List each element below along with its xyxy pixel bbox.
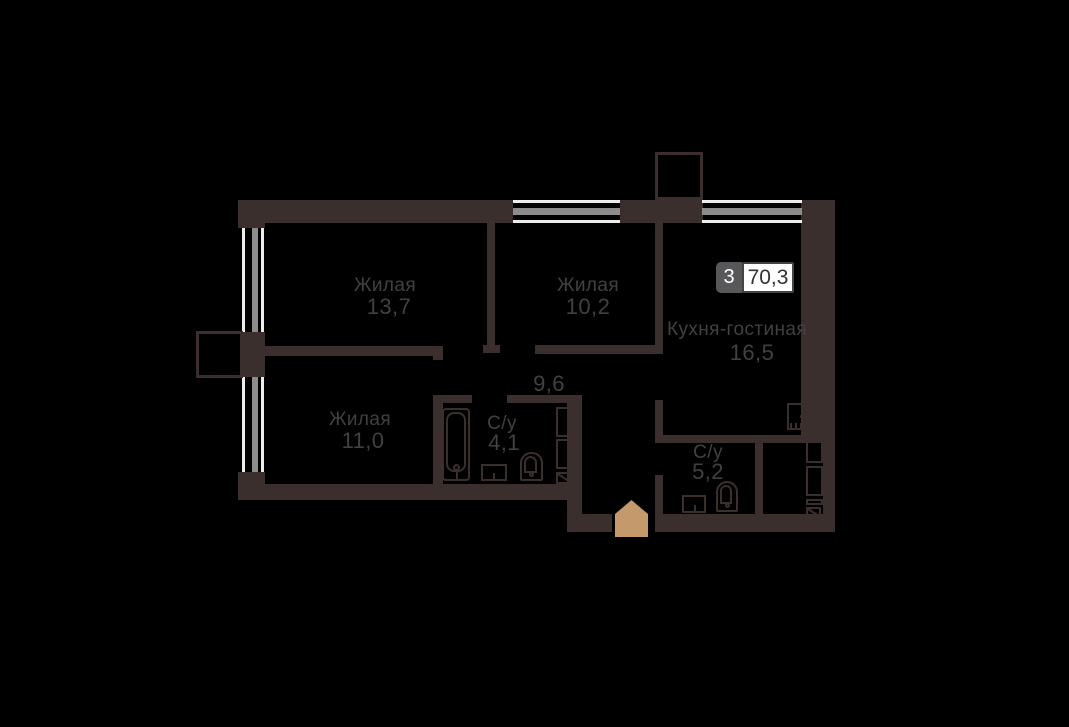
window <box>513 200 620 223</box>
wall-jamb <box>483 345 500 353</box>
room-label: Кухня-гостиная <box>667 319 807 341</box>
ventilation-shaft-left <box>196 331 243 378</box>
wall-bottom-left <box>238 484 582 500</box>
cabinet-shelf <box>806 466 823 496</box>
wall-bathroom2-top <box>655 435 805 443</box>
floor-plan: Жилая 13,7 Жилая 10,2 Кухня-гостиная 16,… <box>0 0 1069 727</box>
toilet <box>481 464 507 481</box>
window <box>238 377 265 472</box>
utility-box <box>806 507 821 518</box>
room-area: 5,2 <box>692 459 724 485</box>
wall-bottom-mid <box>567 514 612 532</box>
wall-left-corner-top <box>238 200 265 228</box>
ventilation-shaft-top <box>655 152 703 200</box>
sink <box>520 452 543 481</box>
window <box>702 200 802 223</box>
room-area: 4,1 <box>488 430 520 456</box>
wall-between-living13-living10 <box>487 223 495 345</box>
bathtub <box>442 408 470 481</box>
wall-top-mid <box>620 200 703 223</box>
cabinet-shelf <box>806 441 823 463</box>
wall-between-living13-living11 <box>265 346 442 356</box>
entrance-marker <box>615 500 648 537</box>
wall-bathroom2-right <box>755 443 763 517</box>
utility-box <box>556 472 572 484</box>
cabinet-shelf <box>556 407 572 437</box>
sink <box>716 481 738 512</box>
room-area: 10,2 <box>566 294 610 320</box>
wall-top-left <box>238 200 513 223</box>
cabinet-shelf <box>556 439 572 469</box>
room-area: 9,6 <box>533 371 565 397</box>
room-area: 13,7 <box>367 294 411 320</box>
room-count-badge: 3 <box>716 262 742 293</box>
toilet <box>682 495 706 513</box>
total-area-badge: 70,3 <box>742 262 794 293</box>
wall-jamb <box>433 346 443 360</box>
cabinet-shelf <box>806 499 823 505</box>
wall-bathroom2-left <box>655 475 663 517</box>
apartment-badge: 3 70,3 <box>716 262 794 293</box>
window <box>238 228 265 332</box>
wall-between-living10-hall <box>535 345 663 354</box>
wall-kitchen-divider-upper <box>655 223 663 353</box>
room-area: 11,0 <box>342 428 385 454</box>
kitchen-sink <box>787 403 817 430</box>
room-area: 16,5 <box>730 340 774 366</box>
